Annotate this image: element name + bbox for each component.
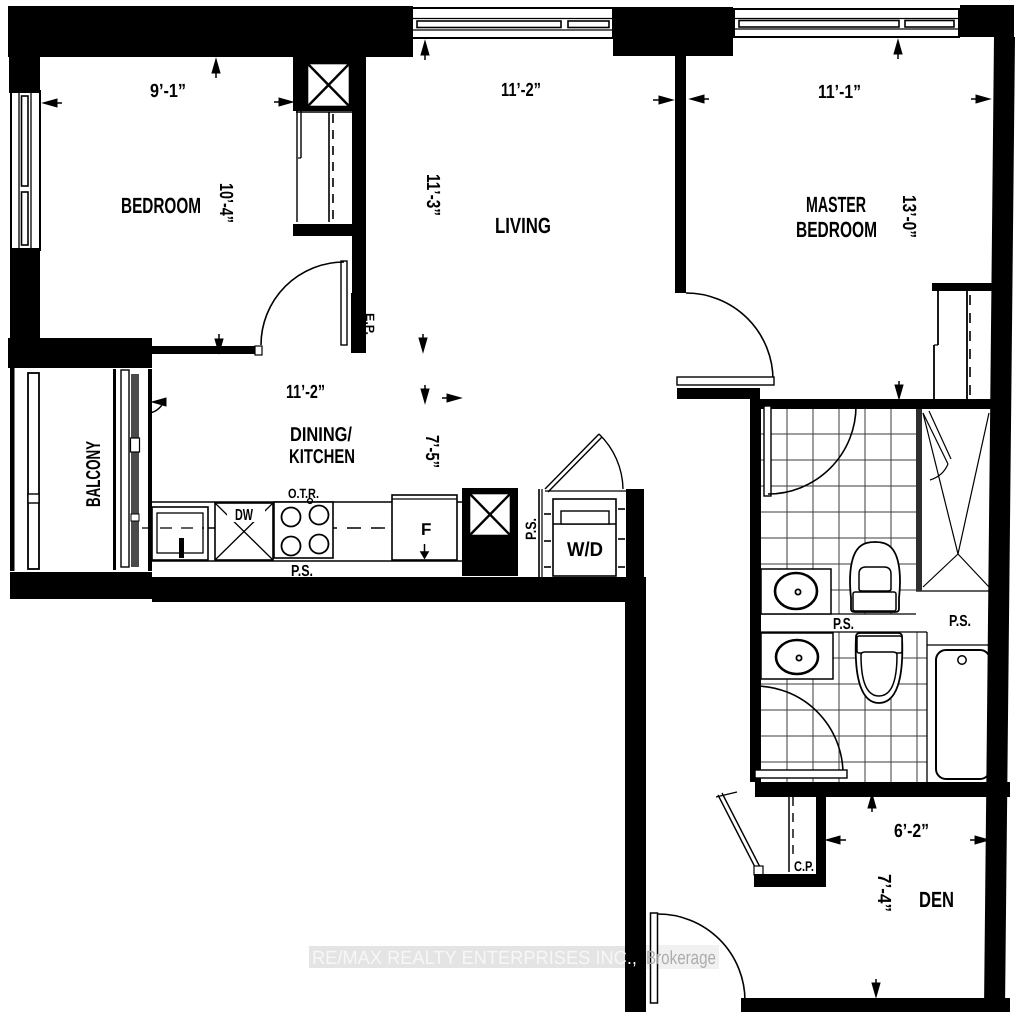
svg-text:E.P.: E.P.	[363, 313, 377, 335]
svg-text:RE/MAX REALTY ENTERPRISES INC.: RE/MAX REALTY ENTERPRISES INC.,	[312, 948, 637, 969]
svg-text:C.P.: C.P.	[794, 858, 814, 874]
svg-text:11’-3”: 11’-3”	[422, 174, 443, 216]
svg-text:W/D: W/D	[567, 539, 603, 561]
svg-text:11’-1”: 11’-1”	[818, 82, 861, 103]
svg-text:F: F	[421, 520, 431, 539]
svg-text:7’-4”: 7’-4”	[873, 874, 894, 912]
svg-text:11’-2”: 11’-2”	[286, 382, 325, 403]
svg-text:DEN: DEN	[919, 887, 954, 912]
svg-text:BEDROOM: BEDROOM	[796, 217, 877, 242]
svg-text:BALCONY: BALCONY	[83, 441, 105, 507]
svg-text:Brokerage: Brokerage	[646, 948, 716, 969]
svg-text:DW: DW	[235, 507, 254, 524]
svg-text:11’-2”: 11’-2”	[501, 80, 541, 101]
svg-text:O.T.R.: O.T.R.	[288, 486, 319, 501]
svg-text:6’-2”: 6’-2”	[894, 821, 929, 842]
svg-text:P.S.: P.S.	[833, 616, 854, 633]
svg-text:KITCHEN: KITCHEN	[289, 446, 355, 468]
svg-text:10’-4”: 10’-4”	[215, 183, 236, 223]
svg-text:P.S.: P.S.	[523, 518, 540, 540]
svg-text:BEDROOM: BEDROOM	[121, 193, 201, 218]
svg-text:13’-0”: 13’-0”	[898, 195, 919, 238]
svg-text:DINING/: DINING/	[290, 424, 352, 446]
svg-text:MASTER: MASTER	[806, 192, 866, 217]
svg-text:P.S.: P.S.	[949, 613, 971, 630]
svg-text:LIVING: LIVING	[495, 213, 551, 238]
svg-text:9’-1”: 9’-1”	[150, 81, 186, 102]
svg-text:7’-5”: 7’-5”	[421, 435, 442, 468]
